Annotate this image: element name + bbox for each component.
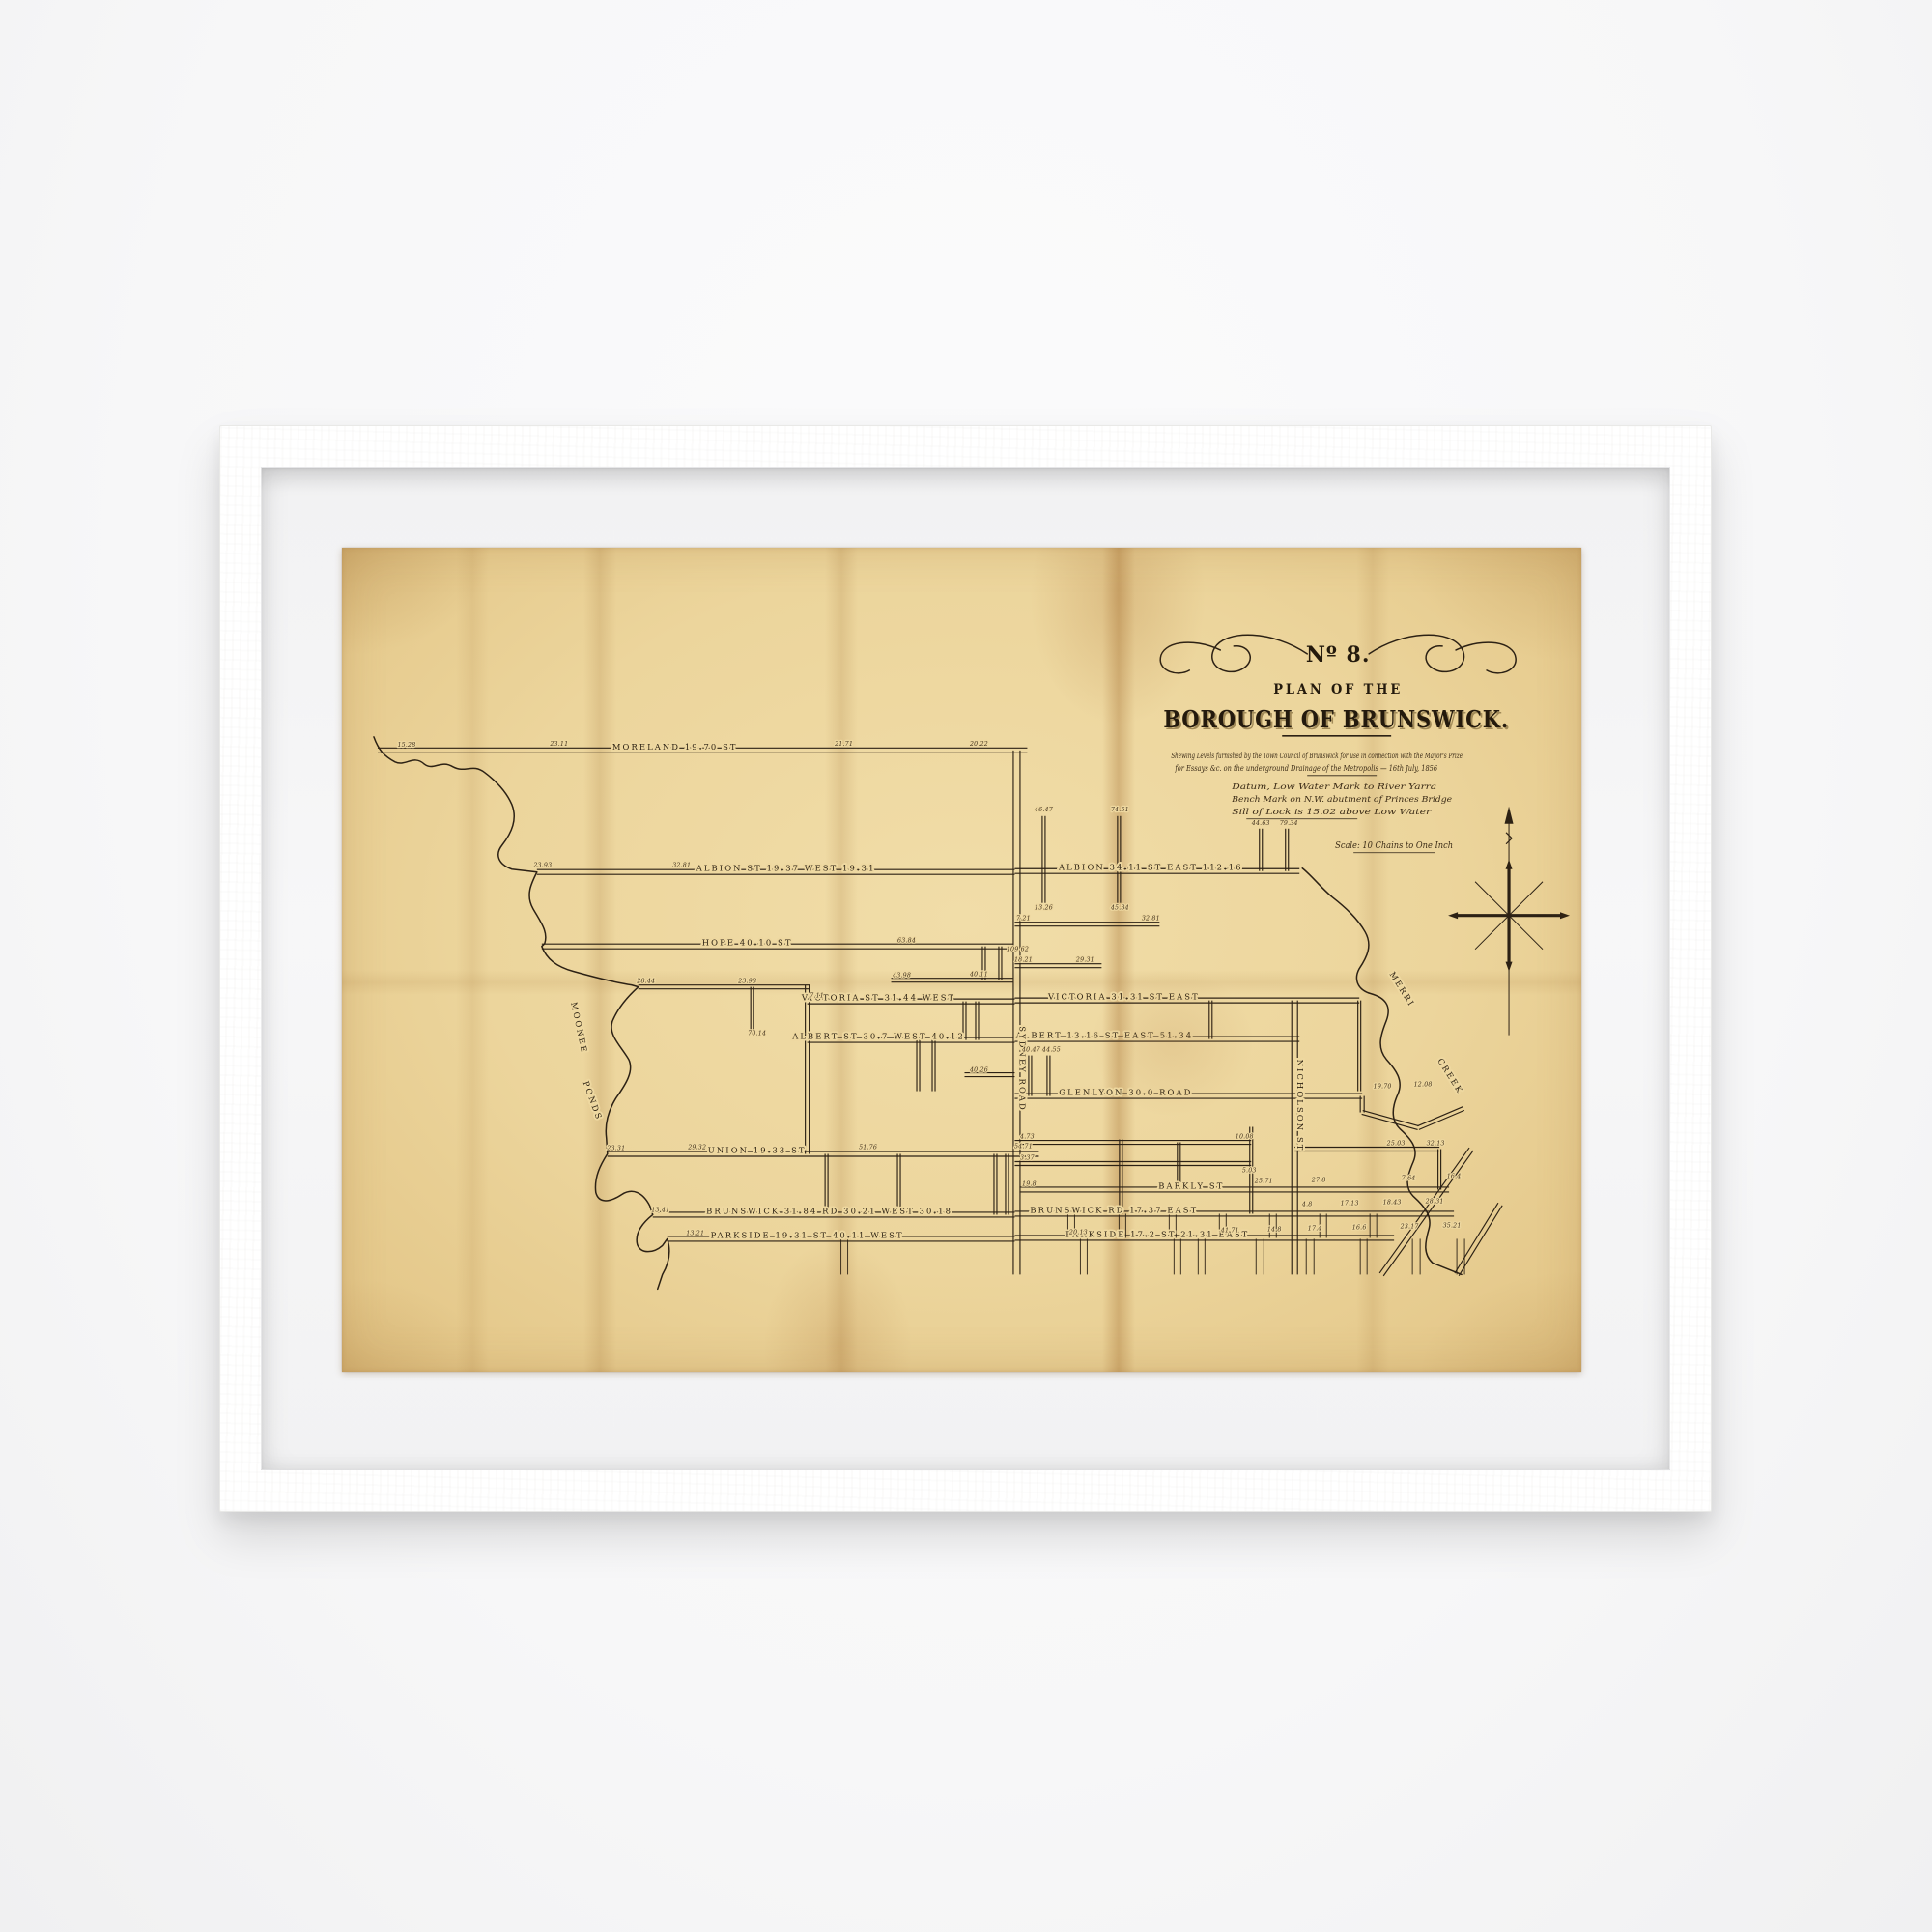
subtitle-line: for Essays &c. on the underground Draina… bbox=[1175, 764, 1438, 774]
spot-level-number: 28.31 bbox=[1425, 1198, 1444, 1205]
subtitle-line: Shewing Levels furnished by the Town Cou… bbox=[1171, 752, 1463, 761]
spot-level-number: 3.37 bbox=[1020, 1155, 1035, 1162]
spot-level-number: 23.31 bbox=[606, 1146, 625, 1152]
spot-level-number: 35.21 bbox=[1443, 1222, 1462, 1229]
spot-level-number: 7.21 bbox=[1016, 916, 1031, 923]
spot-level-number: 17.4 bbox=[1308, 1225, 1322, 1232]
compass-tip bbox=[1506, 962, 1513, 972]
spot-level-number: 21.71 bbox=[834, 741, 853, 748]
spot-level-number: 40.26 bbox=[969, 1067, 988, 1074]
scale-label: Scale: 10 Chains to One Inch bbox=[1335, 841, 1453, 851]
spot-level-number: 19.8 bbox=[1022, 1180, 1037, 1187]
spot-level-number: 40.11 bbox=[969, 972, 988, 979]
spot-level-number: 109.62 bbox=[1007, 947, 1029, 953]
street-line bbox=[1419, 1110, 1464, 1129]
title-line: PLAN OF THE bbox=[1273, 682, 1403, 697]
spot-level-number: 16.6 bbox=[1352, 1224, 1367, 1231]
spot-level-number: 23.17 bbox=[1400, 1223, 1419, 1230]
spot-level-number: 15.28 bbox=[397, 742, 415, 749]
spot-level-number: 7.11 bbox=[810, 993, 824, 1000]
creek-line bbox=[374, 737, 669, 1290]
spot-level-number: 20.22 bbox=[969, 741, 988, 748]
spot-level-number: 10.08 bbox=[1236, 1134, 1254, 1141]
street-name-label: PARKSIDE 19.31 ST 40.11 WEST bbox=[711, 1230, 904, 1239]
title-flourish bbox=[1212, 635, 1307, 671]
spot-level-number: 45.34 bbox=[1110, 905, 1129, 912]
spot-level-number: 14.8 bbox=[1267, 1226, 1282, 1233]
street-name-label: GLENLYON 30.0 ROAD bbox=[1059, 1088, 1192, 1097]
spot-level-number: 13.26 bbox=[1035, 905, 1053, 912]
spot-level-number: 32.81 bbox=[1142, 916, 1160, 923]
spot-level-number: 41.71 bbox=[1220, 1227, 1239, 1234]
compass-tip bbox=[1506, 860, 1513, 869]
street-name-label: MERRI bbox=[1388, 970, 1417, 1009]
title-main: BOROUGH OF BRUNSWICK. bbox=[1163, 705, 1509, 733]
street-line bbox=[1417, 1107, 1463, 1126]
spot-level-number: 16.4 bbox=[1447, 1173, 1462, 1179]
street-name-label: NICHOLSON ST bbox=[1295, 1060, 1305, 1152]
street-line bbox=[1362, 1114, 1418, 1129]
product-photo-wall: MORELAND 19.70 STALBION ST 19.37 WEST 19… bbox=[0, 0, 1932, 1932]
compass-north-arrow bbox=[1505, 807, 1514, 824]
compass-tip bbox=[1560, 912, 1570, 919]
spot-level-number: 19.70 bbox=[1374, 1084, 1392, 1091]
street-name-label: HOPE 40.10 ST bbox=[702, 938, 793, 948]
spot-level-number: 17.13 bbox=[1341, 1200, 1359, 1207]
street-line bbox=[1363, 1111, 1419, 1126]
spot-level-number: 12.08 bbox=[1414, 1082, 1433, 1089]
street-line bbox=[1459, 1206, 1502, 1276]
spot-level-number: 32.13 bbox=[1427, 1141, 1445, 1148]
spot-level-number: 63.84 bbox=[897, 938, 916, 945]
spot-level-number: 27.8 bbox=[1311, 1177, 1326, 1183]
spot-level-number: 18.21 bbox=[1014, 957, 1033, 964]
street-name-label: MOONEE bbox=[569, 1001, 589, 1054]
spot-level-number: 29.32 bbox=[687, 1145, 706, 1151]
street-name-label: UNION 19.33 ST bbox=[708, 1146, 807, 1155]
street-name-label: ALBION ST 19.37 WEST 19.31 bbox=[696, 864, 876, 873]
spot-level-number: 23.11 bbox=[549, 741, 568, 748]
spot-level-number: 40.47 bbox=[1021, 1047, 1040, 1054]
street-name-label: BRUNSWICK RD 17.37 EAST bbox=[1030, 1205, 1198, 1214]
street-name-label: PONDS bbox=[582, 1080, 605, 1122]
spot-level-number: 7.64 bbox=[1402, 1175, 1416, 1181]
street-name-label: ALBERT 13.16 ST EAST 51.34 bbox=[1015, 1031, 1194, 1040]
spot-level-number: 23.93 bbox=[532, 863, 552, 869]
street-line bbox=[1455, 1203, 1498, 1273]
spot-level-number: 4.8 bbox=[1301, 1201, 1313, 1207]
datum-note: Bench Mark on N.W. abutment of Princes B… bbox=[1231, 795, 1452, 805]
creek-line bbox=[1302, 868, 1462, 1275]
street-name-label: ALBION 34.11 ST EAST 112.16 bbox=[1058, 863, 1243, 872]
spot-level-number: 54.71 bbox=[1014, 1144, 1033, 1151]
street-name-label: ALBERT ST 30.7 WEST 40.12 bbox=[791, 1032, 965, 1041]
spot-level-number: 20.13 bbox=[1068, 1229, 1088, 1236]
spot-level-number: 23.98 bbox=[737, 979, 756, 985]
map-drawing: MORELAND 19.70 STALBION ST 19.37 WEST 19… bbox=[342, 548, 1581, 1371]
datum-note: Datum, Low Water Mark to River Yarra bbox=[1231, 782, 1436, 792]
spot-level-number: 46.47 bbox=[1034, 807, 1053, 813]
spot-level-number: 28.44 bbox=[636, 979, 655, 985]
spot-level-number: 25.71 bbox=[1254, 1178, 1273, 1184]
spot-level-number: 13.41 bbox=[651, 1207, 669, 1213]
spot-level-number: 44.63 bbox=[1251, 820, 1270, 827]
street-name-label: VICTORIA 31.31 ST EAST bbox=[1047, 992, 1200, 1002]
spot-level-number: 18.43 bbox=[1383, 1199, 1402, 1206]
spot-level-number: 25.03 bbox=[1386, 1141, 1406, 1148]
title-flourish bbox=[1456, 642, 1516, 673]
spot-level-number: 13.21 bbox=[686, 1230, 704, 1236]
title-flourish bbox=[1160, 642, 1220, 673]
map-paper: MORELAND 19.70 STALBION ST 19.37 WEST 19… bbox=[342, 548, 1581, 1372]
spot-level-number: 79.34 bbox=[1280, 820, 1298, 827]
title-flourish bbox=[1369, 635, 1463, 671]
spot-level-number: 5.03 bbox=[1242, 1167, 1257, 1174]
spot-level-number: 70.14 bbox=[748, 1031, 766, 1037]
street-name-label: MORELAND 19.70 ST bbox=[612, 742, 738, 752]
spot-level-number: 29.31 bbox=[1075, 957, 1094, 964]
street-name-label: SYDNEY ROAD bbox=[1017, 1026, 1027, 1112]
spot-level-number: 74.51 bbox=[1111, 807, 1129, 813]
spot-level-number: 43.98 bbox=[892, 973, 911, 980]
spot-level-number: 44.55 bbox=[1041, 1047, 1061, 1054]
plate-number: Nº 8. bbox=[1306, 642, 1371, 668]
street-line bbox=[1379, 1148, 1469, 1273]
datum-note: Sill of Lock is 15.02 above Low Water bbox=[1232, 808, 1432, 817]
compass-tip bbox=[1448, 912, 1458, 919]
spot-level-number: 4.73 bbox=[1019, 1134, 1035, 1141]
spot-level-number: 32.81 bbox=[672, 863, 691, 869]
street-name-label: CREEK bbox=[1435, 1057, 1465, 1096]
street-name-label: BRUNSWICK 31.84 RD 30.21 WEST 30.18 bbox=[706, 1206, 952, 1215]
spot-level-number: 51.76 bbox=[859, 1145, 877, 1151]
street-name-label: BARKLY ST bbox=[1158, 1180, 1224, 1190]
